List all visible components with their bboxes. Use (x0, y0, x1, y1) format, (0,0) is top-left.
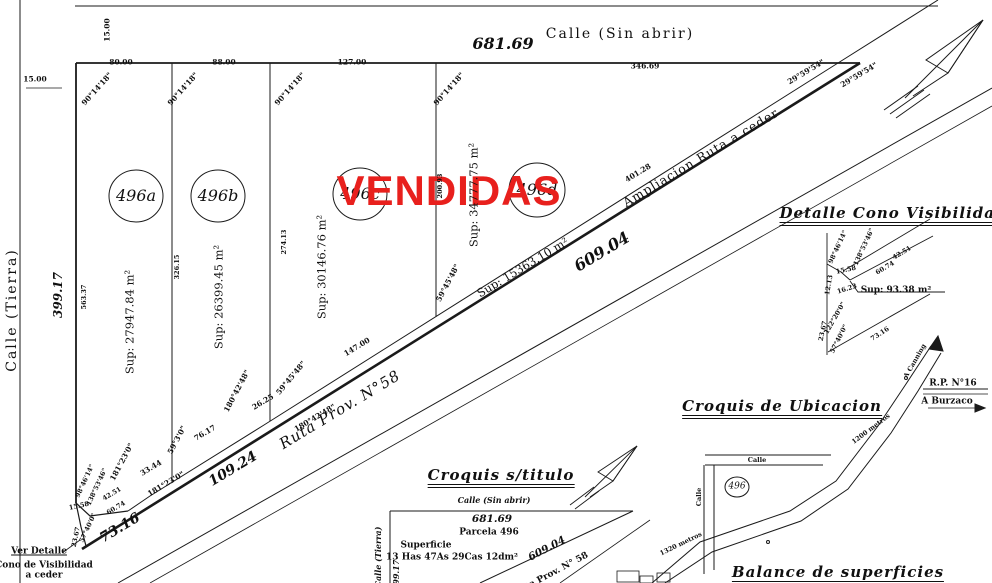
detail-angle-1: 98°46'14" (827, 229, 848, 264)
sold-stamp: VENDIDAS (336, 170, 561, 212)
detail-dim-7: 73.16 (870, 326, 891, 343)
road-rp16: R.P. N°16 (929, 380, 976, 389)
detail-angle-2: 138°53'46" (853, 227, 876, 266)
dim-div-bc: 274.13 (281, 230, 288, 255)
dim-street-total: 681.69 (472, 36, 533, 52)
detail-title: Detalle Cono Visibilidad (780, 206, 992, 226)
dim-diag-496c: 147.00 (343, 336, 371, 357)
angle-route-1: 29°59'54" (786, 58, 825, 86)
cono-dim-1: 15.58 (68, 501, 89, 512)
ver-detalle-line-3: a ceder (26, 572, 63, 581)
location-title: Croquis de Ubicacion (682, 399, 882, 419)
sketch-street-top: Calle (Sin abrir) (458, 496, 531, 504)
dim-left-total: 399.17 (52, 272, 64, 318)
sketch-sup-word: Superficie (401, 542, 452, 551)
angle-div-ab-bottom: 59°3'0" (166, 425, 187, 456)
area-496d: Sup: 34777.75 m² (468, 143, 480, 247)
strip-name: Ampliacion Ruta a ceder (621, 107, 781, 210)
angle-bend-1: 180°42'48" (223, 369, 251, 414)
dim-route-seg-1: 73.16 (98, 511, 143, 546)
dim-frontage-496d: 346.69 (631, 62, 660, 70)
calle-h-label: Calle (748, 457, 766, 464)
cono-dim-4: 23.67 (71, 526, 82, 547)
street-name-left: Calle (Tierra) (5, 248, 19, 372)
angle-div-bc: 59°45'48" (275, 360, 307, 396)
angle-496d: 90°14'18" (432, 71, 465, 107)
sketch-sup-value: 13 Has 47As 29Cas 12dm² (386, 554, 518, 563)
dim-west-side: 563.37 (81, 285, 88, 310)
parcel-id-496a: 496a (116, 188, 156, 204)
sketch-dim-left: 399.17 (392, 560, 400, 583)
dim-frontage-496b: 88.00 (212, 58, 236, 66)
area-496b: Sup: 26399.45 m² (213, 245, 225, 349)
detail-area: Sup: 93.38 m² (861, 287, 932, 296)
detail-dim-5: 16.23 (836, 283, 857, 295)
dim-frontage-496a: 80.00 (109, 58, 133, 66)
sketch-dim-top: 681.69 (472, 514, 512, 525)
sketch-parcel: Parcela 496 (459, 529, 518, 538)
angle-div-cd: 59°45'48" (435, 263, 461, 303)
sketch-route-name: Ruta Prov. N° 58 (512, 551, 590, 583)
street-name-top: Calle (Sin abrir) (546, 27, 694, 41)
route-name: Ruta Prov. N°58 (277, 368, 403, 452)
detail-dim-4: 12.13 (824, 274, 834, 295)
dim-diag-496a: 33.44 (139, 459, 163, 478)
angle-496c: 90°14'18" (273, 71, 306, 107)
area-496c: Sup: 30146.76 m² (316, 215, 328, 319)
ver-detalle-line-1: Ver Detalle (11, 548, 67, 557)
road-a-canning: A Canning (903, 343, 928, 379)
area-496a: Sup: 27947.84 m² (124, 270, 136, 374)
location-parcel-id: 496 (728, 483, 745, 492)
angle-496a: 90°14'18" (80, 71, 113, 107)
angle-bend-4: 181°23'0" (146, 470, 185, 498)
survey-plan-canvas: 15.0015.0080.0090°14'18"88.0090°14'18"12… (0, 0, 992, 583)
sketch-dim-diag: 609.04 (527, 535, 567, 563)
parcel-id-496b: 496b (198, 188, 239, 204)
dim-street-width-left: 15.00 (23, 75, 47, 83)
dim-route-edge: 609.04 (572, 229, 633, 274)
detail-dim-2: 15.58 (835, 265, 856, 276)
angle-496b: 90°14'18" (166, 71, 199, 107)
dim-div-ab: 326.15 (174, 255, 181, 280)
detail-dim-3: 60.74 (875, 260, 896, 276)
angle-route-2: 29°59'54" (839, 61, 878, 89)
dim-diag-496b: 76.17 (193, 424, 217, 443)
dim-route-seg-2: 109.24 (206, 449, 259, 489)
detail-dim-6: 23.67 (818, 320, 829, 341)
dim-bend-seg: 26.25 (251, 393, 275, 412)
ver-detalle-line-2: Cono de Visibilidad (0, 562, 93, 571)
road-a-burzaco: A Burzaco (921, 398, 972, 407)
labels-layer: 15.0015.0080.0090°14'18"88.0090°14'18"12… (0, 0, 992, 583)
dist-1320: 1320 metros (659, 531, 703, 557)
detail-dim-1: 42.51 (892, 245, 913, 261)
dim-div-cd: 200.93 (437, 174, 444, 199)
area-strip: Sup: 15363.10 m² (475, 236, 570, 300)
dim-street-width-vert: 15.00 (103, 18, 111, 42)
sketch-street-left: Calle (Tierra) (374, 527, 382, 583)
balance-title: Balance de superficies (732, 565, 944, 583)
sketch-title: Croquis s/titulo (428, 468, 575, 488)
cono-dim-3: 60.74 (106, 500, 127, 516)
angle-bend-3: 181°23'0" (109, 442, 135, 482)
dim-frontage-496c: 127.00 (338, 58, 367, 66)
calle-v-label: Calle (696, 488, 703, 506)
